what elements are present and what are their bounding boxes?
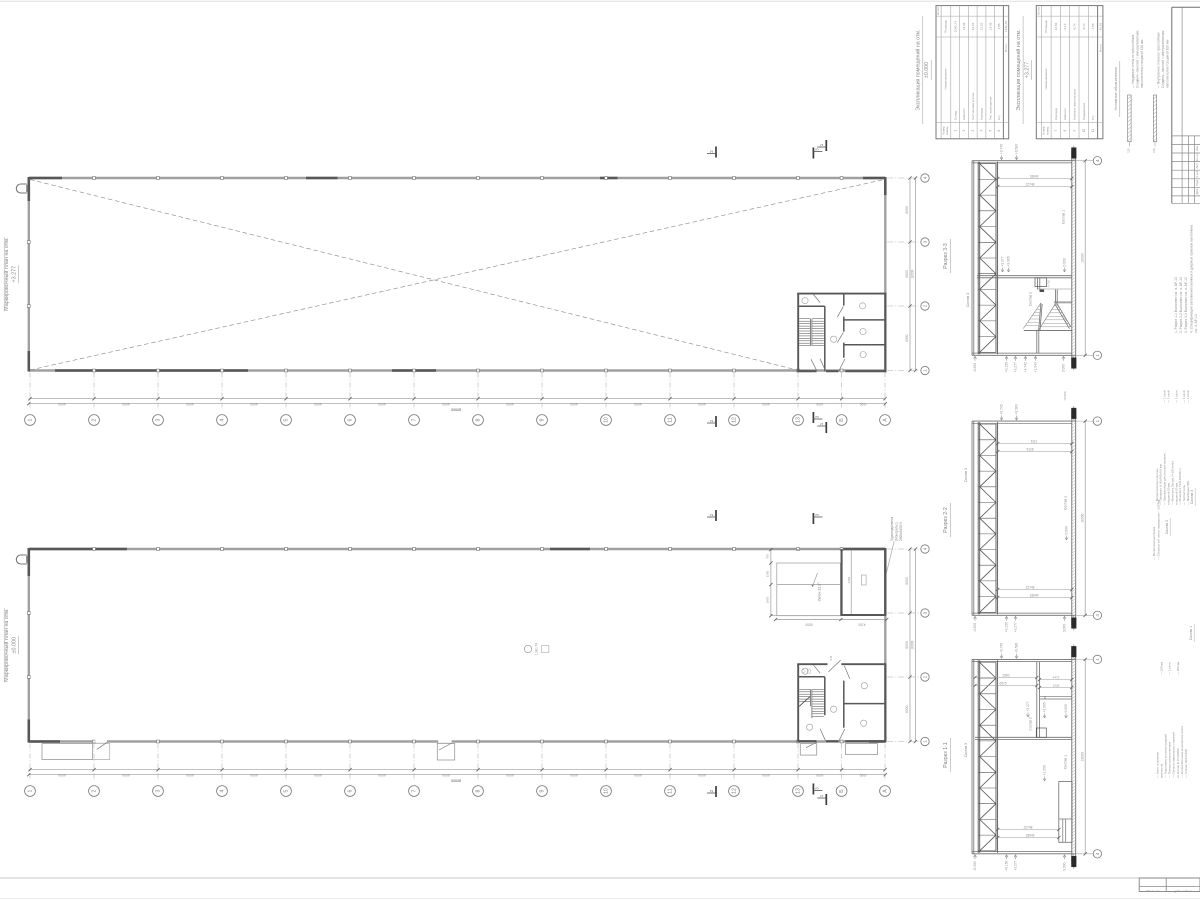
svg-text:помещ.: помещ. bbox=[1046, 126, 1049, 135]
svg-text:— Геотекстиль: — Геотекстиль bbox=[1182, 485, 1186, 505]
svg-text:1: 1 bbox=[1095, 658, 1100, 661]
svg-text:Состав 2: Состав 2 bbox=[1029, 717, 1033, 730]
svg-text:±0.000: ±0.000 bbox=[1063, 391, 1067, 400]
svg-text:3: 3 bbox=[156, 789, 162, 792]
svg-text:2850: 2850 bbox=[766, 596, 770, 603]
svg-text:Состав 3: Состав 3 bbox=[1190, 490, 1194, 504]
svg-text:Состав 1: Состав 1 bbox=[1064, 496, 1068, 510]
svg-text:Сэндвич—панелей с минераловатн: Сэндвич—панелей с минераловатным bbox=[1136, 31, 1140, 88]
svg-text:6000: 6000 bbox=[634, 773, 642, 777]
svg-text:толщиной 50 мм: толщиной 50 мм bbox=[1174, 483, 1178, 505]
svg-text:13,49: 13,49 bbox=[989, 22, 993, 30]
svg-text:6575: 6575 bbox=[999, 681, 1006, 685]
svg-text:5: 5 bbox=[989, 129, 993, 131]
svg-text:2500х3450 Н: 2500х3450 Н bbox=[899, 521, 903, 541]
svg-text:Номер: Номер bbox=[1042, 126, 1046, 135]
svg-text:80000: 80000 bbox=[451, 407, 461, 411]
svg-text:см. л. АР-14: см. л. АР-14 bbox=[1194, 314, 1198, 333]
svg-text:4: 4 bbox=[1095, 852, 1100, 855]
svg-text:9: 9 bbox=[540, 789, 546, 792]
svg-text:— Минплита Экстра У=180 кг/м3,: — Минплита Экстра У=180 кг/м3, bbox=[1170, 460, 1174, 505]
svg-text:Б: Б bbox=[839, 789, 845, 793]
svg-text:Состав 3: Состав 3 bbox=[966, 293, 970, 307]
svg-text:— Железобетонная монолитная пл: — Железобетонная монолитная плита bbox=[1180, 726, 1184, 778]
svg-text:0.000: 0.000 bbox=[1063, 624, 1067, 632]
svg-text:12,52: 12,52 bbox=[1054, 22, 1058, 30]
svg-text:+0.150: +0.150 bbox=[1005, 622, 1009, 632]
svg-text:7: 7 bbox=[1054, 129, 1058, 131]
svg-text:Кол.уч: Кол.уч bbox=[1195, 153, 1199, 161]
svg-text:Разрез 2-2: Разрез 2-2 bbox=[943, 507, 949, 533]
svg-text:6000: 6000 bbox=[905, 206, 909, 214]
svg-text:22748: 22748 bbox=[1026, 182, 1035, 186]
svg-text:— 1 слой: — 1 слой bbox=[1167, 390, 1171, 403]
svg-text:4: 4 bbox=[923, 547, 928, 550]
svg-text:1: 1 bbox=[923, 740, 928, 743]
svg-text:— 1 слой: — 1 слой bbox=[1182, 390, 1186, 403]
svg-text:наполнителем толщиной 100 мм: наполнителем толщиной 100 мм bbox=[1166, 40, 1170, 88]
svg-text:18000: 18000 bbox=[911, 269, 915, 278]
svg-text:6000: 6000 bbox=[378, 773, 386, 777]
svg-text:6000: 6000 bbox=[905, 705, 909, 713]
svg-text:2: 2 bbox=[962, 129, 966, 131]
svg-text:10: 10 bbox=[604, 417, 610, 423]
svg-text:0.000: 0.000 bbox=[1063, 258, 1067, 266]
svg-text:4000: 4000 bbox=[859, 773, 867, 777]
svg-text:+1.043: +1.043 bbox=[1034, 362, 1038, 372]
svg-text:— Пароизоляция для плоских кро: — Пароизоляция для плоских кровель bbox=[1163, 453, 1167, 505]
svg-text:1: 1 bbox=[1095, 419, 1100, 422]
svg-text:6000: 6000 bbox=[250, 773, 258, 777]
svg-text:18000: 18000 bbox=[1080, 513, 1084, 522]
svg-text:9: 9 bbox=[1073, 129, 1077, 131]
svg-text:4000: 4000 bbox=[816, 773, 824, 777]
svg-text:6000: 6000 bbox=[506, 402, 514, 406]
svg-text:6000: 6000 bbox=[905, 270, 909, 278]
svg-text:6000: 6000 bbox=[250, 402, 258, 406]
svg-text:9128: 9128 bbox=[1026, 447, 1033, 451]
svg-text:А: А bbox=[883, 418, 889, 422]
svg-text:6000: 6000 bbox=[570, 773, 578, 777]
svg-text:6000: 6000 bbox=[634, 402, 642, 406]
svg-text:-0.300: -0.300 bbox=[973, 861, 977, 871]
svg-text:А: А bbox=[883, 789, 889, 793]
svg-text:Состав 1: Состав 1 bbox=[1062, 210, 1066, 224]
svg-text:— Сетка из арматурных стержней: — Сетка из арматурных стержней bbox=[1172, 732, 1176, 778]
svg-text:18649: 18649 bbox=[1030, 593, 1039, 597]
svg-text:6000: 6000 bbox=[905, 334, 909, 342]
svg-text:4: 4 bbox=[980, 129, 984, 131]
svg-text:1080,74: 1080,74 bbox=[535, 643, 539, 655]
svg-text:1080,74: 1080,74 bbox=[953, 21, 957, 32]
svg-text:16,26: 16,26 bbox=[971, 22, 975, 30]
svg-text:— Грунт основания: — Грунт основания bbox=[1155, 752, 1159, 778]
svg-text:1: 1 bbox=[28, 418, 34, 421]
svg-text:0.000: 0.000 bbox=[1064, 704, 1068, 712]
svg-text:6000: 6000 bbox=[378, 402, 386, 406]
svg-text:8: 8 bbox=[476, 418, 482, 421]
svg-text:±0.000: ±0.000 bbox=[12, 637, 18, 653]
svg-text:750: 750 bbox=[766, 554, 770, 559]
svg-text:— Топпинг REFLOOR: — Топпинг REFLOOR bbox=[1184, 749, 1188, 778]
svg-text:Раздевалка: Раздевалка bbox=[1082, 103, 1086, 120]
svg-text:-0.300: -0.300 bbox=[973, 623, 977, 633]
svg-text:0.000: 0.000 bbox=[1063, 862, 1067, 870]
svg-text:— 3 слоя: — 3 слоя bbox=[1174, 390, 1178, 403]
svg-text:из бетона В 15 (М200): из бетона В 15 (М200) bbox=[1176, 748, 1180, 778]
svg-text:100: 100 bbox=[1152, 148, 1156, 153]
svg-text:Изм: Изм bbox=[1195, 146, 1199, 151]
svg-text:5: 5 bbox=[284, 789, 290, 792]
svg-text:6000: 6000 bbox=[570, 402, 578, 406]
svg-text:N док: N док bbox=[1195, 170, 1199, 178]
svg-text:— Профлист Н 60х845х0,8 мм: — Профлист Н 60х845х0,8 мм bbox=[1159, 464, 1163, 505]
svg-text:7: 7 bbox=[412, 789, 418, 792]
svg-text:+3.277: +3.277 bbox=[1014, 860, 1018, 870]
svg-text:2: 2 bbox=[92, 418, 98, 421]
svg-text:Лист: Лист bbox=[1195, 162, 1199, 168]
svg-text:Уклон 11,3°: Уклон 11,3° bbox=[818, 582, 822, 602]
svg-text:+3.277: +3.277 bbox=[1014, 362, 1018, 372]
svg-text:1,58: 1,58 bbox=[1091, 23, 1095, 29]
svg-text:+3.277: +3.277 bbox=[1014, 622, 1018, 632]
svg-text:6000: 6000 bbox=[122, 402, 130, 406]
svg-text:— Металлические прогоны: — Металлические прогоны bbox=[1155, 469, 1159, 505]
svg-text:22748: 22748 bbox=[1026, 585, 1035, 589]
svg-text:Условные обозначения: Условные обозначения bbox=[1113, 67, 1118, 110]
svg-text:— Наружные стены из трехслойны: — Наружные стены из трехслойных bbox=[1131, 34, 1135, 88]
svg-text:Итого: Итого bbox=[1098, 44, 1102, 52]
svg-text:(Монорельс): (Монорельс) bbox=[895, 522, 899, 541]
svg-text:+9.745: +9.745 bbox=[1000, 643, 1004, 653]
svg-text:2: 2 bbox=[923, 304, 928, 307]
svg-text:13,49: 13,49 bbox=[962, 22, 966, 30]
svg-text:Наименование: Наименование bbox=[1044, 68, 1048, 89]
svg-text:5: 5 bbox=[284, 418, 290, 421]
svg-text:— Пленка полиэтиленовая: — Пленка полиэтиленовая bbox=[1168, 741, 1172, 778]
svg-text:ин.чо цод: ин.чо цод bbox=[1146, 889, 1160, 893]
svg-text:+0.150: +0.150 bbox=[1005, 362, 1009, 372]
svg-text:— Мембрана ПВХ: — Мембрана ПВХ bbox=[1186, 481, 1190, 505]
svg-text:18000: 18000 bbox=[1080, 253, 1084, 262]
svg-text:— 1 слой: — 1 слой bbox=[1163, 390, 1167, 403]
svg-text:18649: 18649 bbox=[1030, 174, 1039, 178]
svg-text:Б: Б bbox=[839, 418, 845, 422]
svg-text:Состав 1: Состав 1 bbox=[1064, 755, 1068, 769]
svg-text:±0.000: ±0.000 bbox=[924, 62, 930, 78]
svg-text:1: 1 bbox=[1095, 354, 1100, 357]
svg-text:11: 11 bbox=[668, 417, 674, 422]
svg-text:2. Разрез 2-2 Выполнен см. л.: 2. Разрез 2-2 Выполнен см. л. АР-13 bbox=[1179, 277, 1183, 333]
svg-text:18000: 18000 bbox=[911, 640, 915, 649]
svg-text:3: 3 bbox=[156, 418, 162, 421]
svg-text:-0.762: -0.762 bbox=[1047, 280, 1051, 288]
svg-text:Состав 3: Состав 3 bbox=[964, 743, 968, 757]
svg-text:6000: 6000 bbox=[186, 773, 194, 777]
svg-text:6000: 6000 bbox=[762, 402, 770, 406]
svg-text:Площадь: Площадь bbox=[1044, 20, 1048, 33]
svg-text:1528: 1528 bbox=[1053, 683, 1060, 687]
svg-text:4: 4 bbox=[923, 176, 928, 179]
svg-text:2560: 2560 bbox=[1002, 673, 1009, 677]
svg-text:Площадь: Площадь bbox=[944, 20, 948, 33]
svg-text:— 2 слоя: — 2 слоя bbox=[1168, 662, 1172, 675]
svg-text:Комната переговоров: Комната переговоров bbox=[1073, 89, 1077, 120]
svg-text:Экспликация помещений на отм.: Экспликация помещений на отм. bbox=[1015, 29, 1022, 110]
svg-text:1: 1 bbox=[28, 789, 34, 792]
svg-text:6000: 6000 bbox=[698, 402, 706, 406]
svg-text:+3.065: +3.065 bbox=[1043, 702, 1047, 712]
svg-text:18000: 18000 bbox=[1080, 752, 1084, 761]
svg-text:11: 11 bbox=[668, 788, 674, 793]
svg-text:4. Спецификация заполнения око: 4. Спецификация заполнения оконных и две… bbox=[1189, 225, 1193, 333]
svg-text:11: 11 bbox=[1091, 129, 1095, 133]
svg-text:атад и .пдоП: атад и .пдоП bbox=[1174, 889, 1192, 893]
svg-text:6000: 6000 bbox=[122, 773, 130, 777]
svg-text:1: 1 bbox=[923, 369, 928, 372]
svg-text:6000: 6000 bbox=[58, 773, 66, 777]
svg-text:12: 12 bbox=[732, 417, 738, 423]
svg-text:40,62: 40,62 bbox=[1098, 22, 1102, 30]
svg-text:6000: 6000 bbox=[905, 577, 909, 585]
svg-text:+9.580: +9.580 bbox=[1015, 144, 1019, 154]
svg-text:+1.200: +1.200 bbox=[1043, 765, 1047, 775]
svg-text:4100: 4100 bbox=[858, 622, 865, 626]
svg-text:Сэндвич—панелей с минераловатн: Сэндвич—панелей с минераловатным bbox=[1161, 31, 1165, 88]
svg-text:Кол-во: Кол-во bbox=[1037, 6, 1041, 15]
svg-text:+9.580: +9.580 bbox=[1015, 404, 1019, 414]
svg-text:6: 6 bbox=[348, 789, 354, 792]
svg-text:Состав 3: Состав 3 bbox=[964, 468, 968, 482]
svg-text:+3.065: +3.065 bbox=[1007, 256, 1011, 266]
svg-text:6000: 6000 bbox=[314, 773, 322, 777]
svg-text:Разрез 1-1: Разрез 1-1 bbox=[943, 742, 949, 768]
svg-text:Тех. помещение: Тех. помещение bbox=[989, 96, 993, 120]
svg-text:+3.277: +3.277 bbox=[12, 266, 18, 283]
svg-text:С/у: С/у bbox=[997, 115, 1001, 120]
svg-text:6000: 6000 bbox=[805, 622, 812, 626]
svg-text:6000: 6000 bbox=[698, 773, 706, 777]
svg-text:Коридор: Коридор bbox=[1054, 108, 1058, 120]
svg-text:0.000: 0.000 bbox=[1065, 526, 1069, 534]
svg-text:— 1 слой: — 1 слой bbox=[1186, 390, 1190, 403]
svg-text:3: 3 bbox=[923, 611, 928, 614]
svg-text:22748: 22748 bbox=[1024, 825, 1033, 829]
svg-text:1: 1 bbox=[953, 129, 957, 131]
svg-text:+4.742: +4.742 bbox=[1024, 362, 1028, 372]
svg-text:6000: 6000 bbox=[506, 773, 514, 777]
svg-text:9: 9 bbox=[540, 418, 546, 421]
svg-text:8: 8 bbox=[1063, 129, 1067, 131]
svg-text:4: 4 bbox=[220, 789, 226, 792]
svg-text:6000: 6000 bbox=[58, 402, 66, 406]
svg-text:6: 6 bbox=[348, 418, 354, 421]
svg-text:6000: 6000 bbox=[314, 402, 322, 406]
svg-text:+3.277: +3.277 bbox=[1026, 701, 1030, 711]
svg-text:4: 4 bbox=[220, 418, 226, 421]
svg-text:— Минплита ТЕХНОРУФ Н,: — Минплита ТЕХНОРУФ Н, bbox=[1178, 467, 1182, 505]
svg-text:1436,39: 1436,39 bbox=[1004, 21, 1008, 32]
svg-text:2200: 2200 bbox=[766, 570, 770, 577]
svg-text:+9.580: +9.580 bbox=[1015, 643, 1019, 653]
svg-text:8,74: 8,74 bbox=[1082, 23, 1086, 29]
svg-text:— Металлическая балка: — Металлическая балка bbox=[1152, 526, 1156, 560]
svg-text:12,52: 12,52 bbox=[980, 22, 984, 30]
svg-text:13: 13 bbox=[796, 788, 802, 794]
svg-text:6000: 6000 bbox=[442, 402, 450, 406]
svg-text:80000: 80000 bbox=[451, 778, 461, 782]
svg-text:9,12: 9,12 bbox=[1063, 23, 1067, 29]
svg-text:0.000: 0.000 bbox=[1062, 364, 1066, 372]
svg-text:Склад: Склад bbox=[953, 111, 957, 120]
svg-text:8: 8 bbox=[476, 789, 482, 792]
svg-text:3: 3 bbox=[923, 240, 928, 243]
svg-text:4: 4 bbox=[1095, 159, 1100, 162]
svg-text:Лестничная клетка: Лестничная клетка bbox=[971, 93, 975, 120]
svg-text:Итого: Итого bbox=[1004, 44, 1008, 52]
svg-text:13: 13 bbox=[796, 417, 802, 423]
svg-text:10: 10 bbox=[1082, 129, 1086, 133]
svg-text:+9.745: +9.745 bbox=[1000, 404, 1004, 414]
svg-text:Экспликация помещений на отм.: Экспликация помещений на отм. bbox=[915, 29, 922, 110]
svg-text:18649: 18649 bbox=[1026, 833, 1035, 837]
svg-text:12: 12 bbox=[732, 788, 738, 794]
svg-text:6: 6 bbox=[997, 129, 1001, 131]
svg-text:-0.300: -0.300 bbox=[973, 363, 977, 373]
svg-text:6000: 6000 bbox=[442, 773, 450, 777]
svg-text:Дата: Дата bbox=[1195, 188, 1199, 194]
svg-text:+0.150: +0.150 bbox=[1005, 860, 1009, 870]
svg-text:+3.277: +3.277 bbox=[1001, 256, 1005, 266]
svg-text:+9.745: +9.745 bbox=[1000, 144, 1004, 154]
svg-text:Кол-во: Кол-во bbox=[936, 6, 940, 15]
svg-text:Кабинет: Кабинет bbox=[962, 108, 966, 120]
svg-text:3: 3 bbox=[971, 129, 975, 131]
svg-text:Разрез 3-3: Разрез 3-3 bbox=[943, 243, 949, 269]
svg-text:4000: 4000 bbox=[859, 402, 867, 406]
svg-text:— 200 мм: — 200 мм bbox=[1176, 662, 1180, 675]
svg-text:+3.277: +3.277 bbox=[1025, 62, 1031, 78]
svg-text:— Подготовка из песка (средней: — Подготовка из песка (средней bbox=[1164, 734, 1168, 778]
svg-text:3. Разрез 3-3 Выполнен см. л.: 3. Разрез 3-3 Выполнен см. л. АР-13 bbox=[1184, 277, 1188, 333]
svg-text:Состав 2: Состав 2 bbox=[1165, 520, 1169, 534]
svg-text:крупности): крупности) bbox=[1159, 764, 1163, 778]
svg-text:10: 10 bbox=[604, 788, 610, 794]
svg-text:2: 2 bbox=[92, 789, 98, 792]
svg-text:120: 120 bbox=[1127, 148, 1131, 153]
svg-text:С/у: С/у bbox=[1091, 115, 1095, 120]
svg-text:Состав 2: Состав 2 bbox=[1029, 292, 1033, 306]
svg-text:5-В: 5-В bbox=[829, 656, 833, 661]
svg-text:4473: 4473 bbox=[1053, 675, 1060, 679]
svg-text:Состав 1: Состав 1 bbox=[1189, 626, 1193, 640]
svg-text:Коридор: Коридор bbox=[980, 108, 984, 120]
svg-text:Наименование: Наименование bbox=[944, 68, 948, 89]
svg-text:4100: 4100 bbox=[847, 576, 851, 583]
svg-text:8,74: 8,74 bbox=[1073, 23, 1077, 29]
svg-text:6000: 6000 bbox=[905, 641, 909, 649]
svg-text:7: 7 bbox=[412, 418, 418, 421]
svg-text:— 200 мм: — 200 мм bbox=[1159, 662, 1163, 675]
svg-text:1,58: 1,58 bbox=[997, 23, 1001, 29]
svg-text:Номер: Номер bbox=[941, 126, 945, 135]
svg-text:2: 2 bbox=[923, 675, 928, 678]
svg-text:наполнителем толщиной 120 мм: наполнителем толщиной 120 мм bbox=[1140, 40, 1144, 88]
svg-text:— Внутренние стены из трехслой: — Внутренние стены из трехслойных bbox=[1157, 32, 1161, 88]
svg-text:6111: 6111 bbox=[1031, 439, 1038, 443]
svg-text:6000: 6000 bbox=[762, 773, 770, 777]
svg-text:Грузоподъемник: Грузоподъемник bbox=[890, 516, 894, 541]
svg-text:4000: 4000 bbox=[816, 402, 824, 406]
svg-text:помещ.: помещ. bbox=[946, 126, 949, 135]
svg-text:толщиной 50 мм: толщиной 50 мм bbox=[1167, 483, 1171, 505]
svg-text:4: 4 bbox=[1095, 614, 1100, 617]
svg-text:— Сборные ж/б плиты перекрытия: — Сборные ж/б плиты перекрытия— 220 мм bbox=[1157, 500, 1161, 560]
svg-text:1. Разрез 1-1 Выполнен см. л.: 1. Разрез 1-1 Выполнен см. л. АР-13 bbox=[1174, 277, 1178, 333]
svg-text:Кабинет: Кабинет bbox=[1063, 108, 1067, 120]
svg-text:Подп: Подп bbox=[1195, 179, 1199, 186]
svg-text:6000: 6000 bbox=[186, 402, 194, 406]
